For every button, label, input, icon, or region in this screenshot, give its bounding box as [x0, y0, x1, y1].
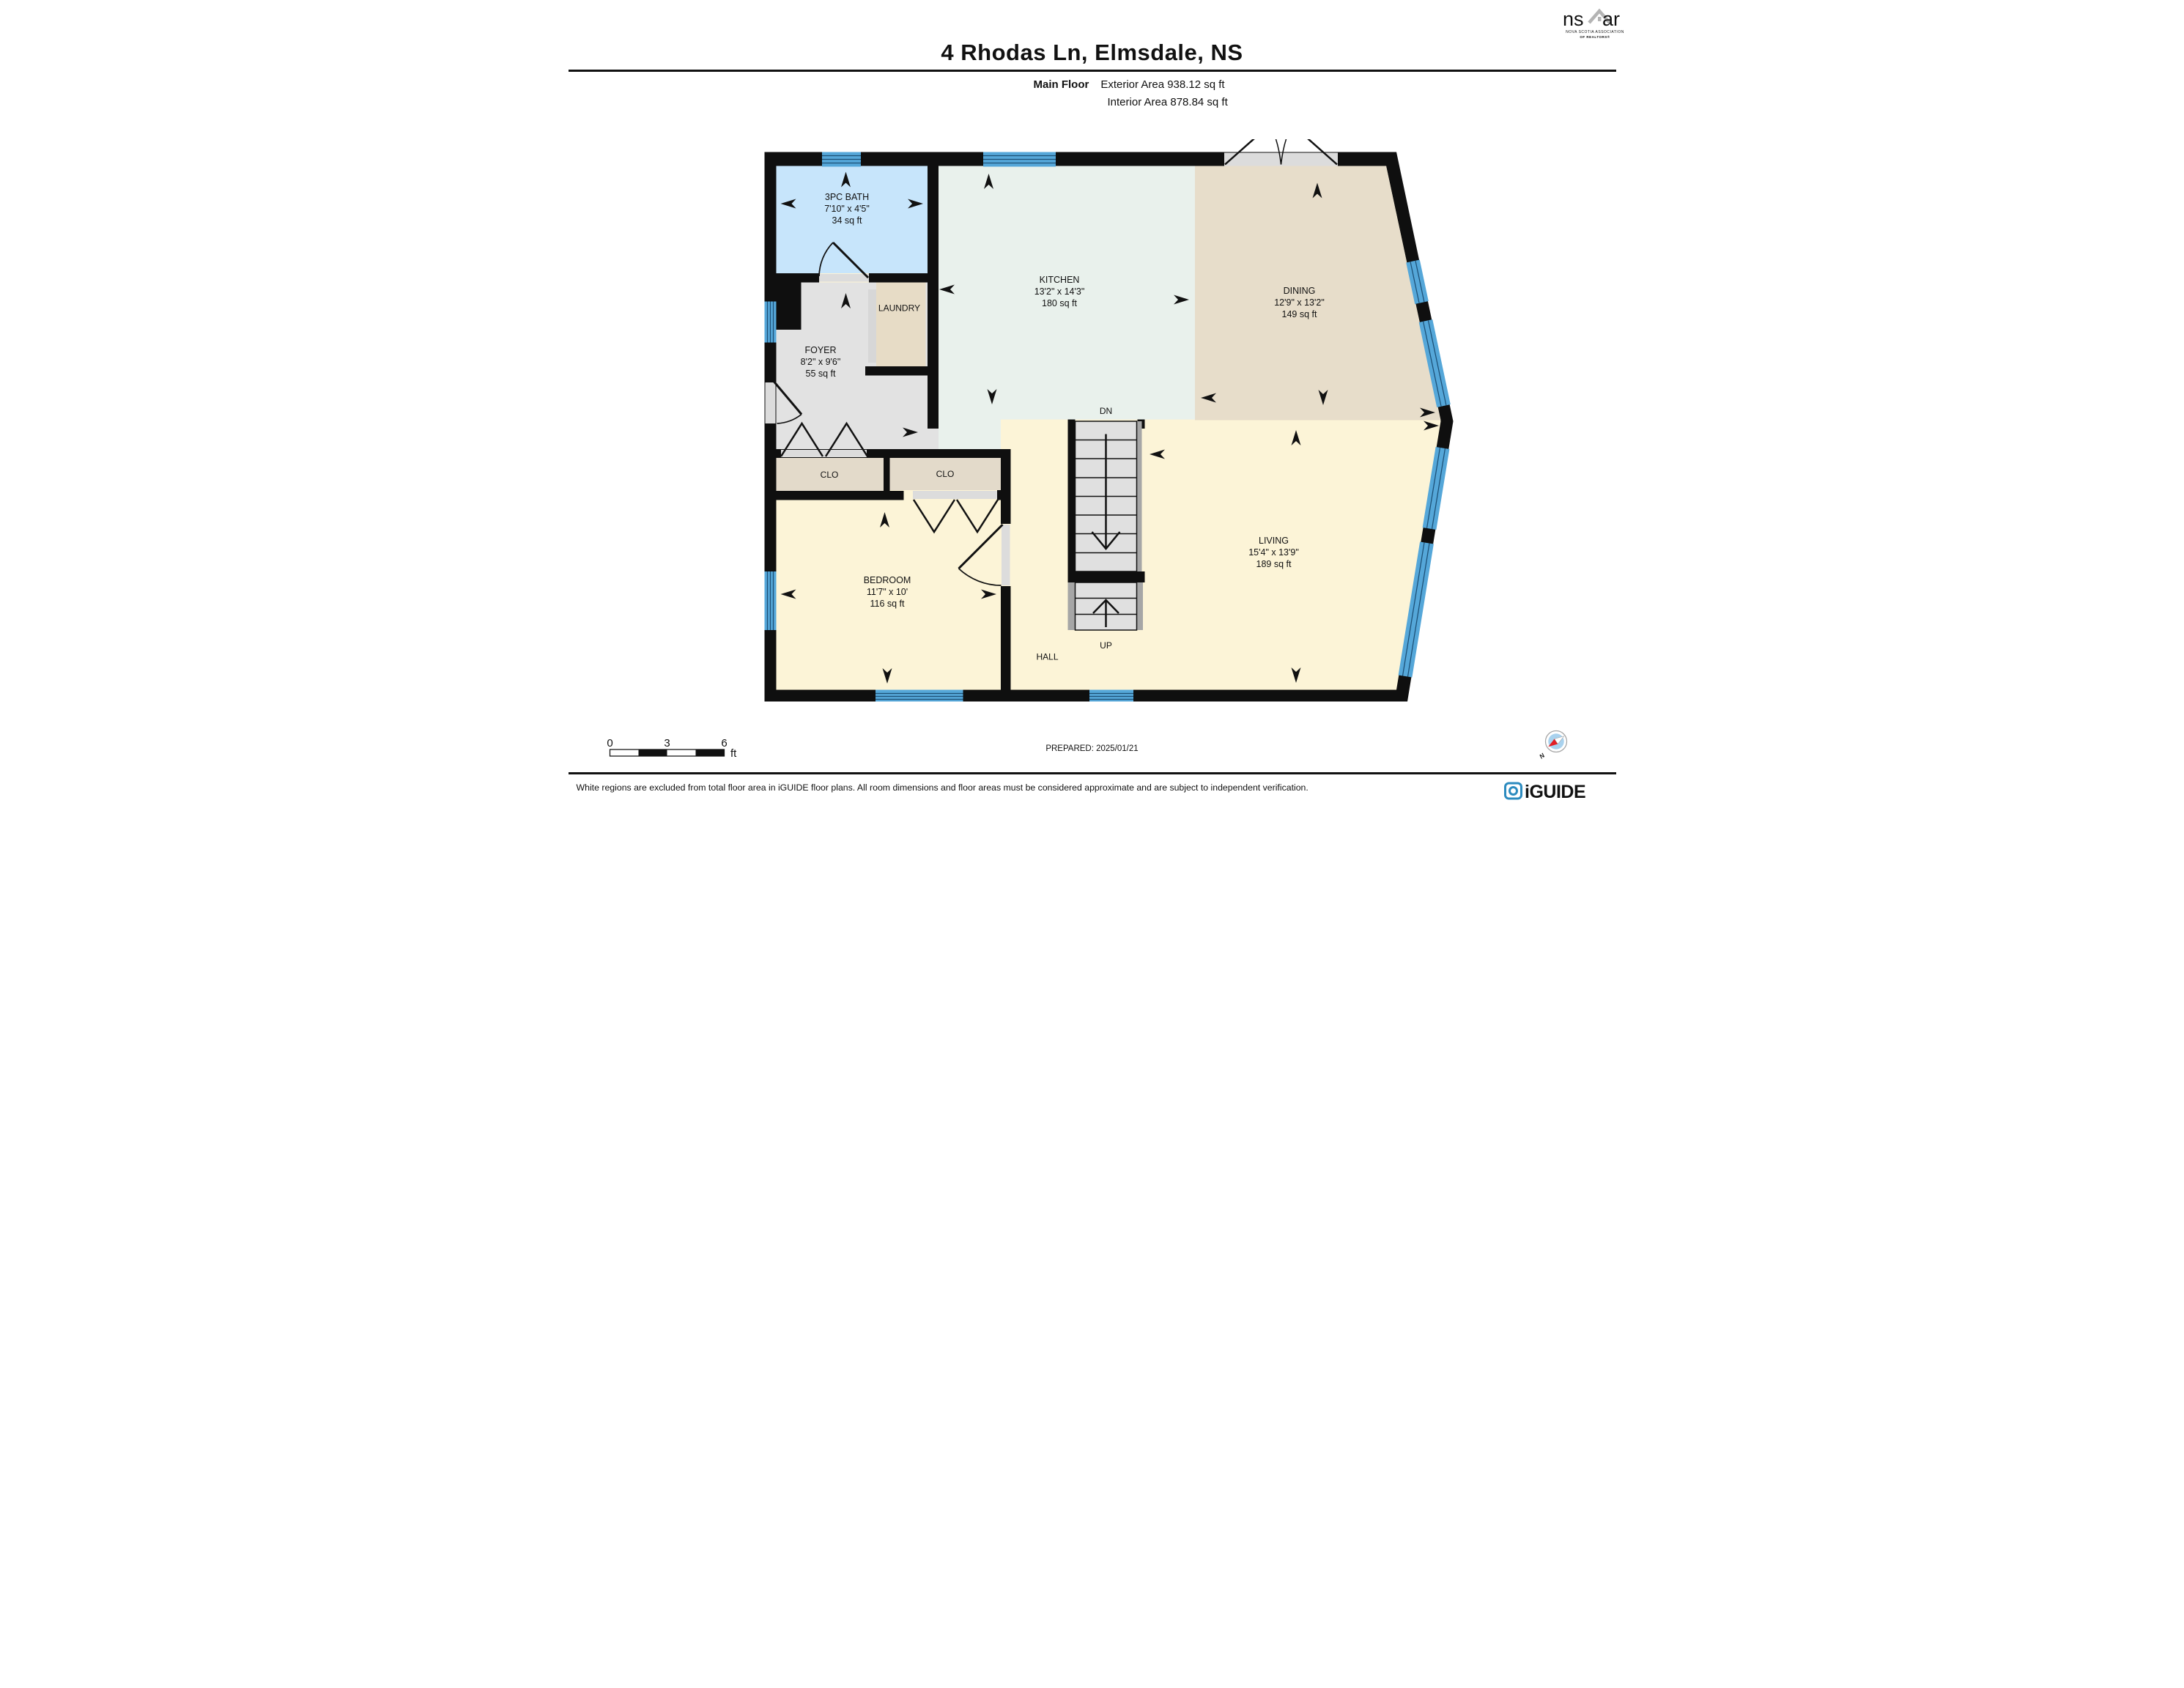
bath-label: 3PC BATH: [824, 192, 868, 202]
foyer-dims: 8'2" x 9'6": [800, 357, 840, 367]
nsar-caption-2: OF REALTORS®: [1580, 34, 1610, 39]
iguide-logo: iGUIDE: [1503, 780, 1594, 802]
exterior-area: Exterior Area 938.12 sq ft: [1100, 78, 1224, 91]
laundry-opening: [868, 289, 876, 363]
nsar-house-door: [1598, 17, 1602, 21]
footer-disclaimer: White regions are excluded from total fl…: [577, 782, 1308, 793]
dining-dims: 12'9" x 13'2": [1274, 297, 1325, 308]
living-dims: 15'4" x 13'9": [1248, 547, 1299, 558]
interior-area: Interior Area 878.84 sq ft: [1108, 96, 1228, 108]
closet-right-label: CLO: [936, 469, 954, 479]
closet-left-label: CLO: [820, 470, 838, 480]
nsar-logo-ar: ar: [1602, 8, 1620, 30]
iguide-camera-lens: [1509, 788, 1517, 795]
scale-bar-seg1: [638, 749, 667, 756]
iguide-wordmark: iGUIDE: [1525, 782, 1585, 802]
living-area: 189 sq ft: [1256, 559, 1291, 569]
foyer-label: FOYER: [804, 345, 836, 355]
window-bedroom-left: [764, 571, 776, 630]
living-label: LIVING: [1259, 536, 1289, 546]
dining-area: 149 sq ft: [1281, 309, 1317, 319]
stairs-down-label: DN: [1099, 406, 1111, 416]
window-hall-bottom: [1089, 690, 1133, 702]
compass-north-label: N: [1538, 751, 1547, 760]
bedroom-label: BEDROOM: [863, 575, 911, 585]
scale-bar: 0 3 6 ft: [604, 734, 772, 765]
floor-summary: Main Floor Exterior Area 938.12 sq ft: [1034, 78, 1225, 91]
iguide-camera-icon: [1505, 783, 1521, 799]
dining-label: DINING: [1283, 286, 1315, 296]
scale-tick-3: 3: [664, 737, 670, 749]
laundry-floor: [876, 283, 926, 367]
scale-bar-seg2: [695, 749, 724, 756]
bath-area: 34 sq ft: [832, 215, 862, 226]
staircase: [1067, 421, 1143, 630]
floor-plan: 3PC BATH 7'10" x 4'5" 34 sq ft KITCHEN 1…: [752, 139, 1470, 711]
stairs-up-label: UP: [1100, 640, 1112, 651]
scale-tick-6: 6: [721, 737, 727, 749]
nsar-logo: ns ar NOVA SCOTIA ASSOCIATION OF REALTOR…: [1561, 6, 1629, 44]
window-bedroom-bottom: [876, 690, 963, 702]
footer-divider: [569, 772, 1616, 774]
floor-label: Main Floor: [1034, 78, 1089, 91]
prepared-date: PREPARED: 2025/01/21: [1015, 744, 1169, 753]
bedroom-area: 116 sq ft: [870, 599, 905, 609]
nsar-caption-1: NOVA SCOTIA ASSOCIATION: [1566, 30, 1624, 34]
bath-dims: 7'10" x 4'5": [824, 204, 870, 214]
nsar-logo-ns: ns: [1563, 8, 1584, 30]
foyer-area: 55 sq ft: [805, 369, 836, 379]
kitchen-label: KITCHEN: [1039, 275, 1079, 285]
bedroom-dims: 11'7" x 10': [866, 587, 907, 597]
kitchen-area: 180 sq ft: [1042, 298, 1077, 308]
stair-rail-right: [1136, 421, 1141, 571]
title-divider: [569, 70, 1616, 72]
stair-rail-up-right: [1136, 582, 1143, 630]
kitchen-dims: 13'2" x 14'3": [1034, 286, 1084, 297]
kitchen-corridor-floor: [939, 420, 1001, 450]
scale-tick-0: 0: [607, 737, 612, 749]
hall-label: HALL: [1036, 652, 1058, 662]
window-bath: [822, 152, 861, 167]
stair-rail-up-left: [1067, 582, 1075, 630]
page-title: 4 Rhodas Ln, Elmsdale, NS: [547, 40, 1638, 66]
window-foyer: [764, 302, 776, 343]
scale-unit: ft: [730, 747, 737, 760]
window-kitchen: [983, 152, 1056, 167]
compass-icon: N: [1533, 722, 1577, 766]
laundry-label: LAUNDRY: [878, 303, 919, 314]
floorplan-page: 4 Rhodas Ln, Elmsdale, NS Main Floor Ext…: [547, 0, 1638, 844]
foyer-opening: [928, 429, 939, 449]
